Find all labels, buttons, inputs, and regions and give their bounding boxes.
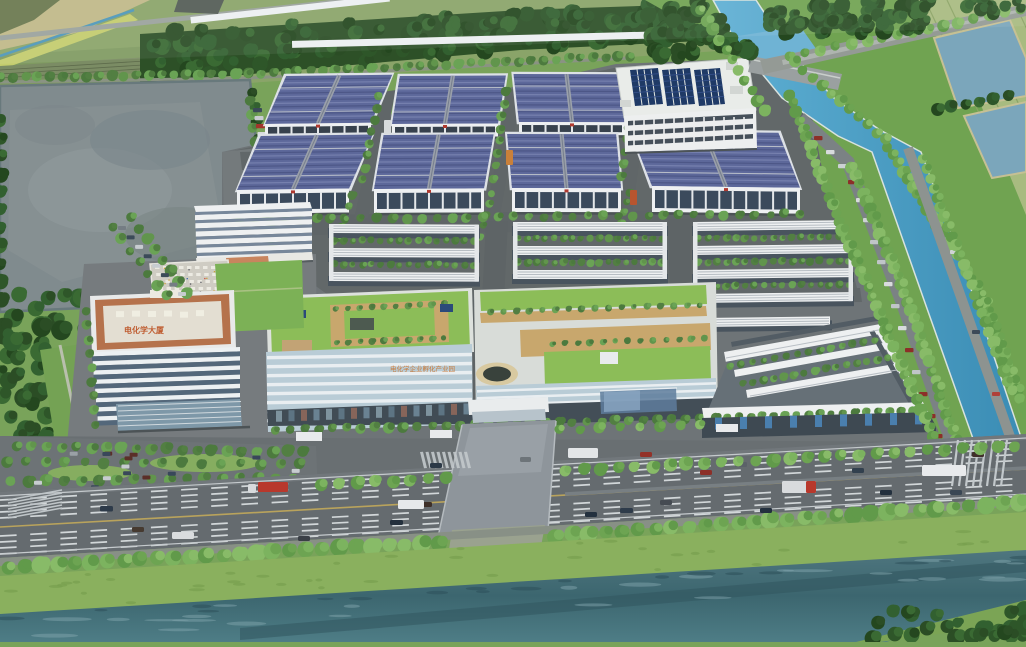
svg-text:电化学大厦: 电化学大厦 — [124, 325, 165, 335]
svg-text:电化学企业孵化产业园: 电化学企业孵化产业园 — [390, 364, 455, 373]
